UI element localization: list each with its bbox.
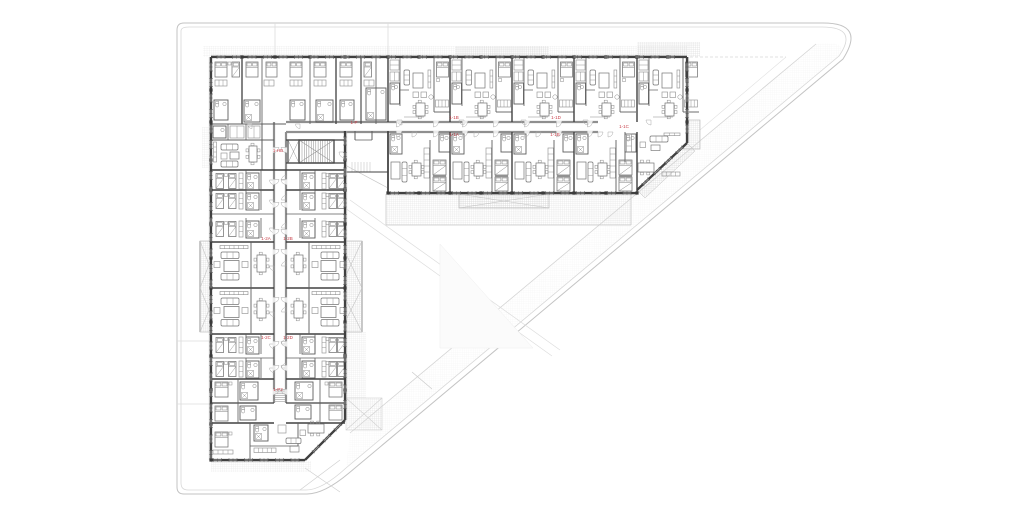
svg-text:1-1D: 1-1D: [551, 115, 562, 120]
svg-text:1-P: 1-P: [350, 120, 357, 125]
svg-text:1-P2: 1-P2: [273, 387, 283, 392]
svg-text:1-2C: 1-2C: [261, 335, 272, 340]
svg-text:1-2A: 1-2A: [261, 236, 271, 241]
svg-text:1-2B: 1-2B: [283, 236, 293, 241]
svg-text:1-2D: 1-2D: [283, 335, 294, 340]
svg-text:1-1B: 1-1B: [449, 115, 459, 120]
svg-text:1-1B: 1-1B: [550, 132, 560, 137]
svg-text:1-1A: 1-1A: [449, 132, 459, 137]
svg-text:1-HB: 1-HB: [273, 148, 283, 153]
svg-text:1-1C: 1-1C: [619, 124, 630, 129]
